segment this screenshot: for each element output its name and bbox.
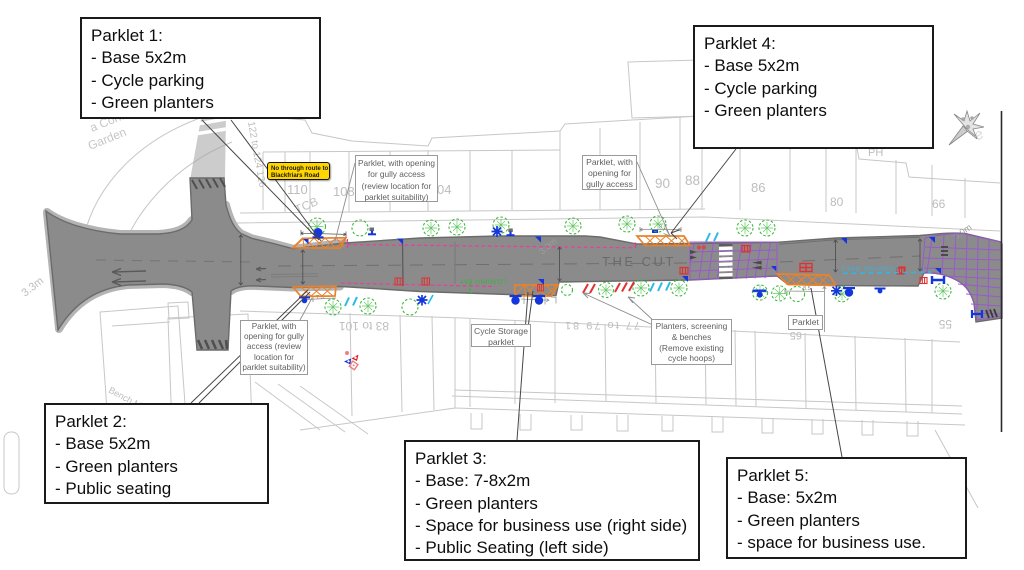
svg-text:55: 55 <box>938 317 952 331</box>
svg-text:110: 110 <box>287 182 308 197</box>
svg-text:65: 65 <box>790 329 802 341</box>
svg-text:83 to 101: 83 to 101 <box>339 319 389 333</box>
svg-text:66: 66 <box>932 197 946 211</box>
svg-text:LOADING ONLY: LOADING ONLY <box>840 265 898 272</box>
svg-text:88: 88 <box>685 173 700 188</box>
svg-text:04: 04 <box>437 182 451 197</box>
svg-text:8.5: 8.5 <box>803 286 811 292</box>
svg-text:108: 108 <box>333 184 355 199</box>
svg-text:LOADING BAY: LOADING BAY <box>459 278 506 284</box>
svg-text:86: 86 <box>751 180 765 195</box>
svg-text:77 to 79 81: 77 to 79 81 <box>563 319 640 331</box>
svg-text:TCB: TCB <box>293 194 321 217</box>
svg-text:90: 90 <box>655 176 670 191</box>
svg-text:3.3m: 3.3m <box>19 275 46 300</box>
svg-text:80: 80 <box>830 195 844 209</box>
svg-text:THE CUT: THE CUT <box>602 254 676 269</box>
